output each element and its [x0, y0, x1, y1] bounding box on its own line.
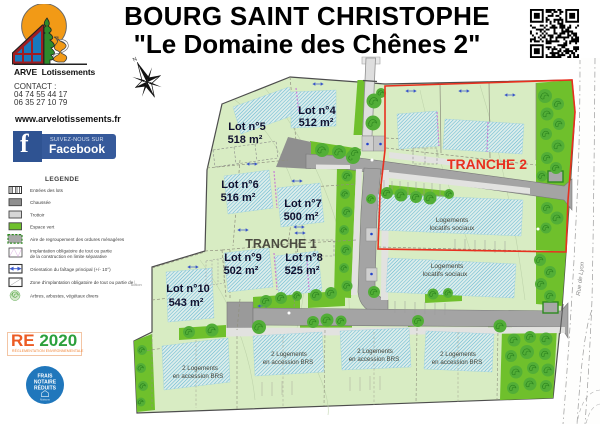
svg-text:locatifs sociaux: locatifs sociaux [423, 271, 468, 278]
svg-text:Lot n°6: Lot n°6 [221, 179, 258, 191]
svg-text:locatifs sociaux: locatifs sociaux [430, 225, 475, 232]
svg-text:en accession BRS: en accession BRS [173, 373, 224, 380]
svg-text:516 m²: 516 m² [221, 192, 256, 204]
svg-text:500 m²: 500 m² [284, 211, 319, 223]
svg-text:Aire de regroupement des ordur: Aire de regroupement des ordures ménagèr… [30, 237, 125, 242]
svg-text:Chaussée: Chaussée [30, 200, 51, 205]
svg-text:Logements: Logements [431, 263, 464, 270]
svg-text:Lot n°5: Lot n°5 [228, 121, 265, 133]
svg-text:Implantation obligatoire de to: Implantation obligatoire de tout ou part… [30, 249, 112, 254]
svg-text:Zone d'implantation obligatoir: Zone d'implantation obligatoire de tout … [30, 280, 135, 285]
svg-text:512 m²: 512 m² [299, 117, 334, 129]
svg-text:Entrées des lots: Entrées des lots [30, 188, 64, 193]
svg-text:Lot n°7: Lot n°7 [284, 198, 321, 210]
svg-text:2 Logements: 2 Logements [182, 365, 218, 372]
svg-text:Arbres, arbustes, végétaux div: Arbres, arbustes, végétaux divers [30, 294, 99, 299]
svg-text:2 Logements: 2 Logements [271, 351, 307, 358]
svg-text:518 m²: 518 m² [228, 134, 263, 146]
svg-text:Trottoir: Trottoir [30, 213, 45, 218]
svg-text:en accession BRS: en accession BRS [432, 359, 483, 366]
svg-text:Lot n°4: Lot n°4 [298, 105, 336, 117]
svg-text:Lot n°9: Lot n°9 [224, 252, 261, 264]
svg-text:Orientation du faîtage princip: Orientation du faîtage principal (+/- 10… [30, 267, 111, 272]
svg-text:525 m²: 525 m² [285, 265, 320, 277]
svg-text:RÉDUITS: RÉDUITS [34, 384, 57, 392]
svg-text:Espace vert: Espace vert [30, 224, 55, 229]
svg-text:Logements: Logements [436, 217, 469, 224]
svg-text:TRANCHE 2: TRANCHE 2 [447, 156, 527, 172]
svg-text:en accession BRS: en accession BRS [263, 359, 314, 366]
svg-text:2 Logements: 2 Logements [440, 351, 476, 358]
svg-text:Maisons: Maisons [40, 398, 50, 402]
svg-text:de la construction en limite s: de la construction en limite séparative [30, 254, 107, 259]
svg-text:en accession BRS: en accession BRS [349, 356, 400, 363]
svg-text:543 m²: 543 m² [169, 297, 204, 309]
svg-text:2 Logements: 2 Logements [357, 348, 393, 355]
svg-text:502 m²: 502 m² [224, 265, 259, 277]
svg-text:Lot n°8: Lot n°8 [285, 252, 322, 264]
svg-text:Lot n°10: Lot n°10 [166, 283, 210, 295]
svg-text:TRANCHE 1: TRANCHE 1 [245, 237, 317, 251]
